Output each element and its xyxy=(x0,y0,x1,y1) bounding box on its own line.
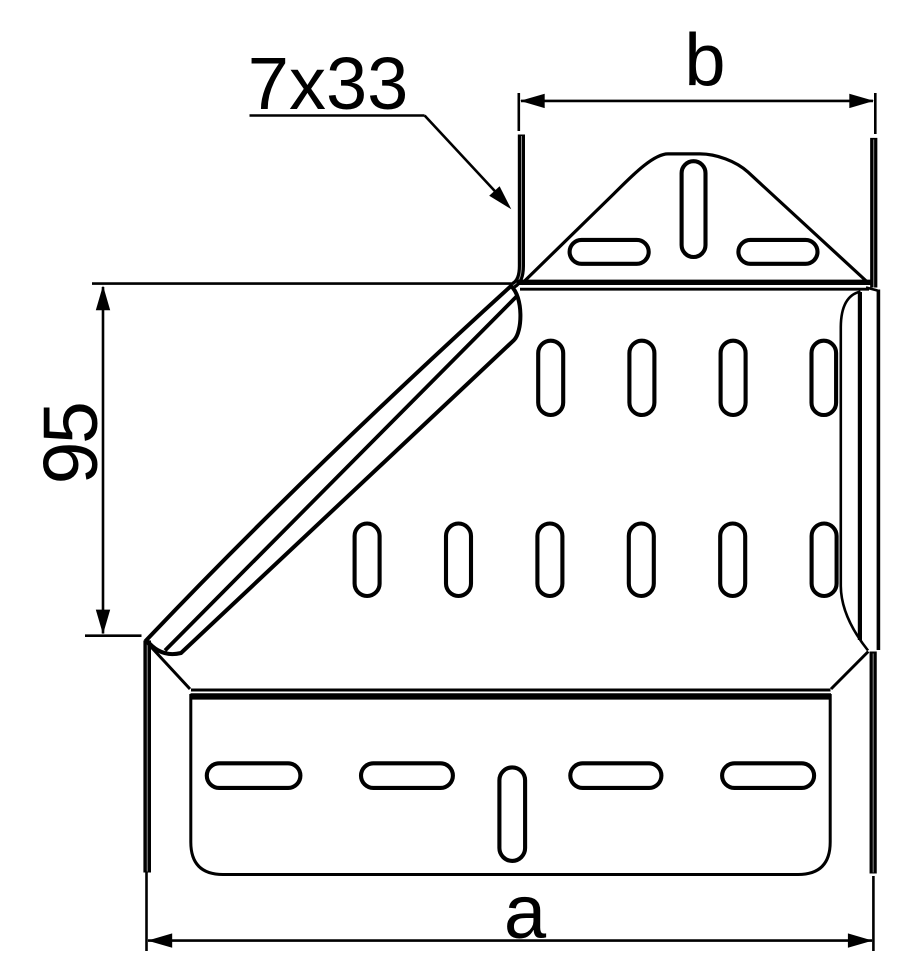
svg-text:b: b xyxy=(684,19,725,102)
svg-text:7x33: 7x33 xyxy=(248,42,408,125)
svg-text:a: a xyxy=(504,870,547,955)
svg-text:95: 95 xyxy=(28,404,114,485)
